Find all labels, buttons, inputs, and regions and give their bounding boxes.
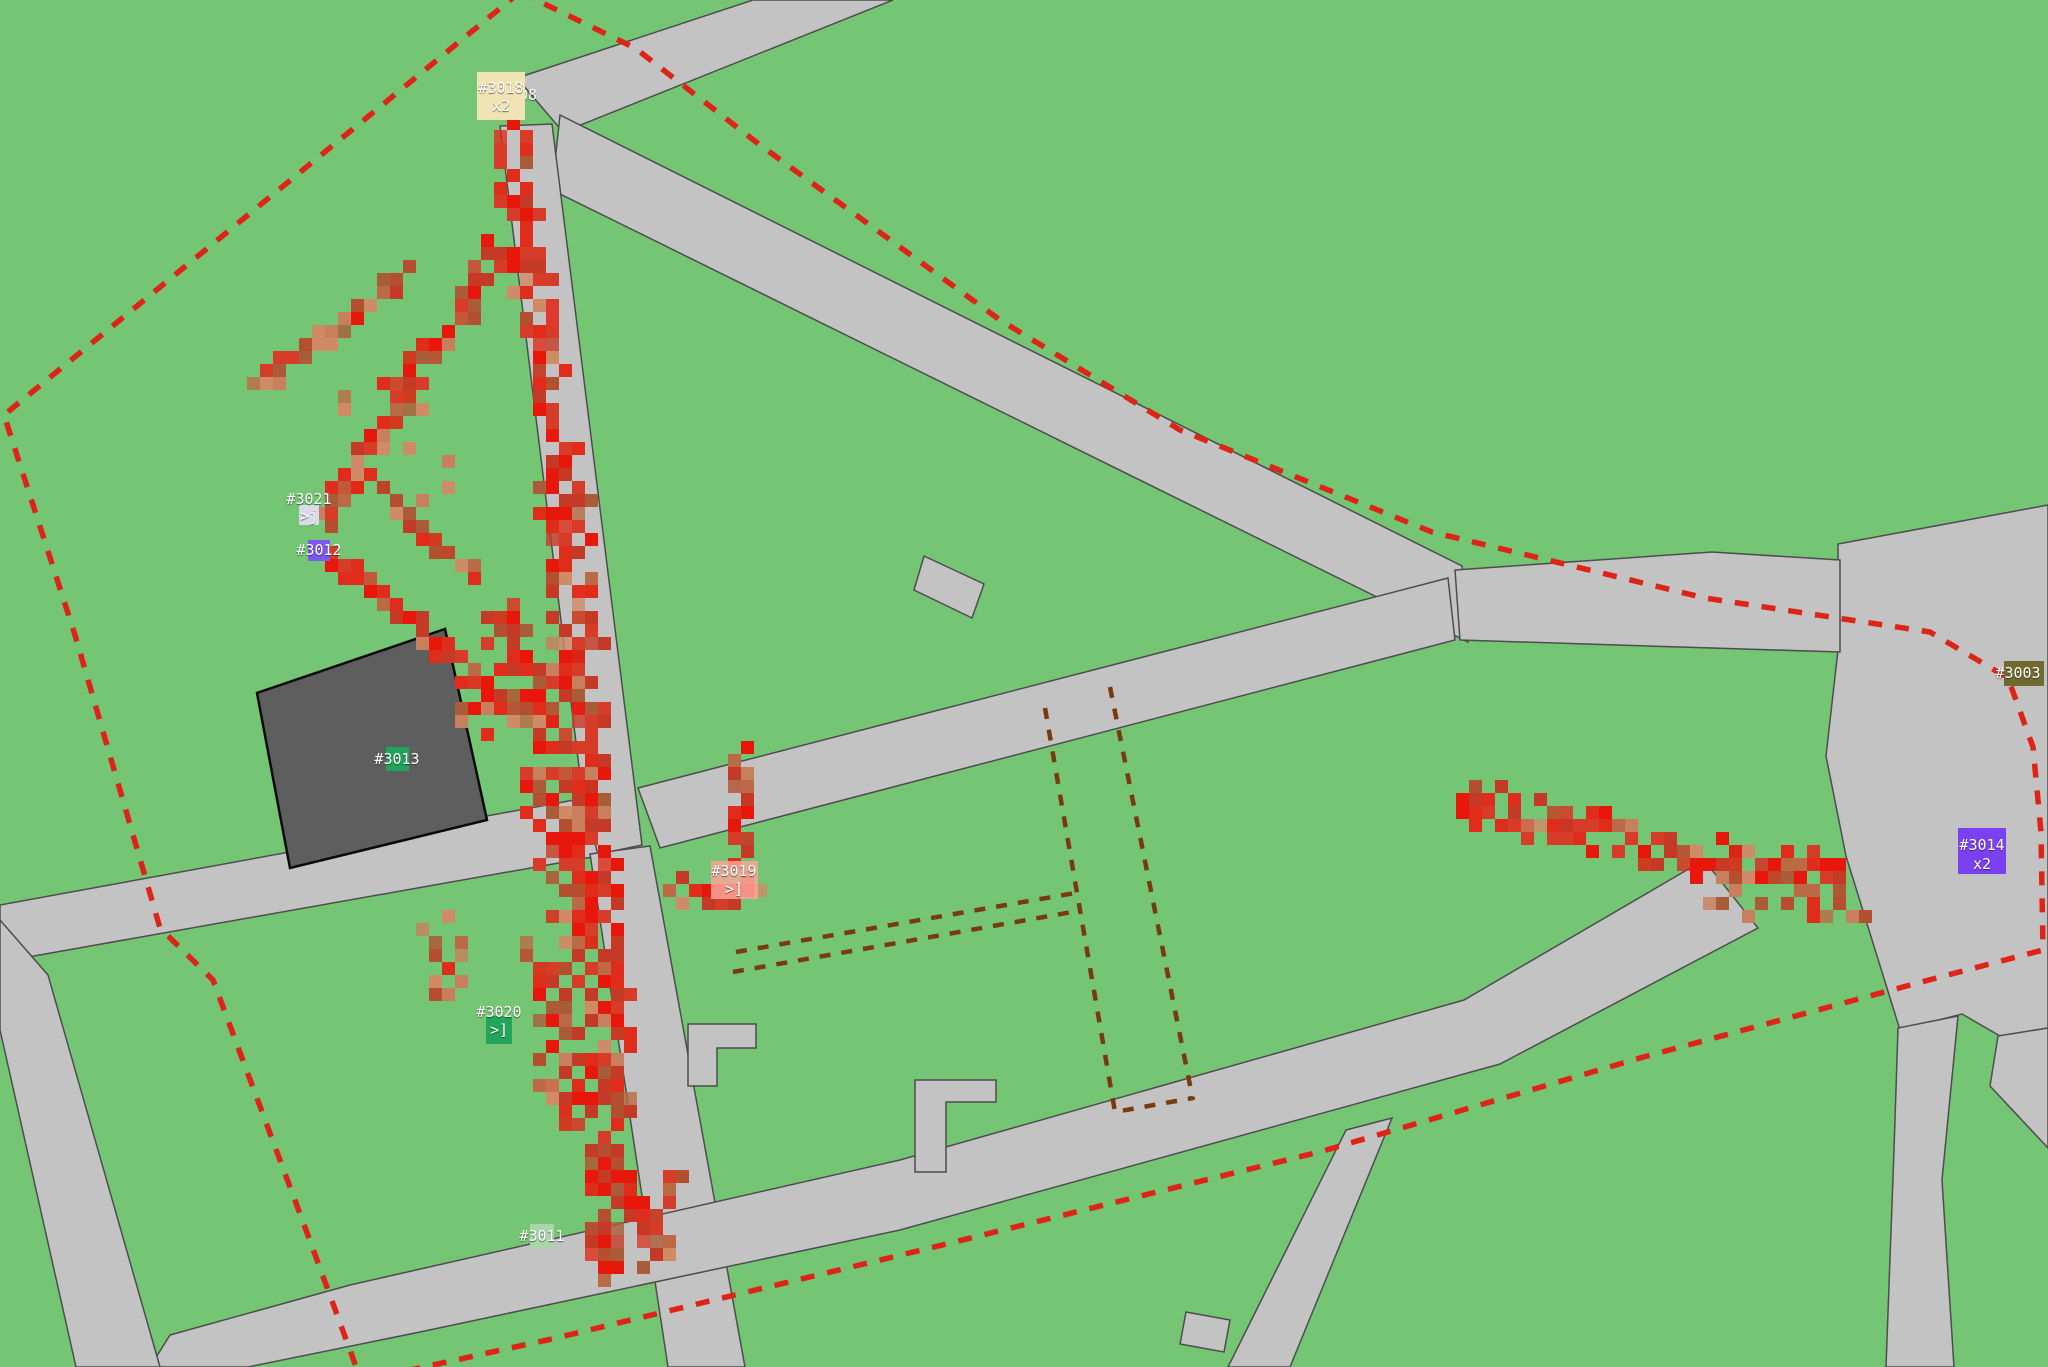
heat-trail-cell — [663, 884, 676, 897]
heat-trail-cell — [442, 910, 455, 923]
heat-trail-cell — [481, 611, 494, 624]
heat-trail-cell — [1833, 884, 1846, 897]
heat-trail-cell — [1560, 832, 1573, 845]
heat-trail-cell — [533, 247, 546, 260]
heat-trail-cell — [546, 975, 559, 988]
heat-trail-cell — [1742, 910, 1755, 923]
heat-trail-cell — [364, 572, 377, 585]
heat-trail-cell — [585, 1235, 598, 1248]
heat-trail-cell — [1664, 845, 1677, 858]
heat-trail-cell — [559, 858, 572, 871]
heat-trail-cell — [520, 702, 533, 715]
heat-trail-cell — [559, 1027, 572, 1040]
road-main-diagonal — [552, 115, 1468, 642]
marker-sublabel-3020[interactable]: >] — [490, 1022, 508, 1039]
heat-trail-cell — [1807, 858, 1820, 871]
heat-trail-cell — [351, 299, 364, 312]
heat-trail-cell — [650, 1235, 663, 1248]
heat-trail-cell — [585, 715, 598, 728]
heat-trail-cell — [520, 689, 533, 702]
zone-dashed-line-1 — [1045, 708, 1193, 1112]
heat-trail-cell — [650, 1248, 663, 1261]
road-stub-a — [688, 1024, 756, 1086]
heat-trail-cell — [546, 273, 559, 286]
heat-trail-cell — [533, 689, 546, 702]
heat-trail-cell — [468, 299, 481, 312]
heat-trail-cell — [442, 481, 455, 494]
map-viewport[interactable]: 08 #3018x2#3021>j#3012#3013#3019>]#3020>… — [0, 0, 2048, 1367]
heat-trail-cell — [1586, 845, 1599, 858]
heat-trail-cell — [559, 533, 572, 546]
marker-sublabel-3019[interactable]: >] — [725, 881, 743, 898]
heat-trail-cell — [611, 1261, 624, 1274]
heat-trail-cell — [351, 442, 364, 455]
heat-trail-cell — [390, 416, 403, 429]
heat-trail-cell — [585, 611, 598, 624]
heat-trail-cell — [299, 338, 312, 351]
heat-trail-cell — [286, 351, 299, 364]
road-left-down — [0, 920, 160, 1367]
heat-trail-cell — [468, 572, 481, 585]
heat-trail-cell — [611, 897, 624, 910]
heat-trail-cell — [728, 780, 741, 793]
heat-trail-cell — [559, 559, 572, 572]
marker-label-3014[interactable]: #3014 — [1959, 837, 2004, 854]
heat-trail-cell — [338, 403, 351, 416]
heat-trail-cell — [1508, 819, 1521, 832]
heat-trail-cell — [351, 455, 364, 468]
heat-trail-cell — [1859, 910, 1872, 923]
heat-trail-cell — [533, 702, 546, 715]
heat-trail-cell — [598, 754, 611, 767]
heat-trail-cell — [611, 962, 624, 975]
heat-trail-cell — [403, 611, 416, 624]
heat-trail-cell — [546, 1014, 559, 1027]
heat-trail-cell — [507, 650, 520, 663]
heat-trail-cell — [1703, 858, 1716, 871]
heat-trail-cell — [598, 1248, 611, 1261]
heat-trail-cell — [1547, 819, 1560, 832]
heat-trail-cell — [585, 871, 598, 884]
heat-trail-cell — [455, 702, 468, 715]
heat-trail-cell — [1716, 871, 1729, 884]
heat-trail-cell — [624, 1027, 637, 1040]
heat-trail-cell — [533, 767, 546, 780]
heat-trail-cell — [390, 403, 403, 416]
heat-trail-cell — [377, 481, 390, 494]
heat-trail-cell — [533, 793, 546, 806]
heat-trail-cell — [520, 286, 533, 299]
heat-trail-cell — [598, 1053, 611, 1066]
heat-trail-cell — [494, 130, 507, 143]
heat-trail-cell — [494, 195, 507, 208]
heat-trail-cell — [611, 1170, 624, 1183]
heat-trail-cell — [546, 871, 559, 884]
heat-trail-cell — [611, 1144, 624, 1157]
heat-trail-cell — [533, 299, 546, 312]
heat-trail-cell — [1794, 858, 1807, 871]
heat-trail-cell — [611, 1196, 624, 1209]
heat-trail-cell — [572, 793, 585, 806]
heat-trail-cell — [481, 689, 494, 702]
heat-trail-cell — [559, 689, 572, 702]
heat-trail-cell — [1664, 832, 1677, 845]
heat-trail-cell — [637, 1235, 650, 1248]
heat-trail-cell — [481, 728, 494, 741]
road-branch-notch — [1180, 1312, 1230, 1352]
heat-trail-cell — [520, 221, 533, 234]
heat-trail-cell — [598, 767, 611, 780]
heat-trail-cell — [572, 611, 585, 624]
heat-trail-cell — [611, 1053, 624, 1066]
heat-trail-cell — [377, 273, 390, 286]
heat-trail-cell — [611, 1118, 624, 1131]
heat-trail-cell — [442, 637, 455, 650]
heat-trail-cell — [403, 390, 416, 403]
heat-trail-cell — [455, 286, 468, 299]
heat-trail-cell — [338, 572, 351, 585]
heat-trail-cell — [559, 546, 572, 559]
heat-trail-cell — [442, 650, 455, 663]
heat-trail-cell — [507, 715, 520, 728]
heat-trail-cell — [1612, 845, 1625, 858]
heat-trail-cell — [1469, 819, 1482, 832]
heat-trail-cell — [728, 832, 741, 845]
heat-trail-cell — [533, 741, 546, 754]
heat-trail-cell — [338, 312, 351, 325]
heat-trail-cell — [455, 299, 468, 312]
heat-trail-cell — [559, 507, 572, 520]
heat-trail-cell — [611, 923, 624, 936]
heat-trail-cell — [546, 468, 559, 481]
heat-trail-cell — [533, 325, 546, 338]
heat-trail-cell — [585, 988, 598, 1001]
heat-trail-cell — [559, 364, 572, 377]
heat-trail-cell — [533, 663, 546, 676]
heat-trail-cell — [1703, 897, 1716, 910]
heat-trail-cell — [572, 741, 585, 754]
heat-trail-cell — [338, 390, 351, 403]
heat-trail-cell — [546, 702, 559, 715]
heat-trail-cell — [494, 624, 507, 637]
heat-trail-cell — [546, 676, 559, 689]
heat-trail-cell — [1456, 806, 1469, 819]
heat-trail-cell — [546, 793, 559, 806]
heat-trail-cell — [1807, 910, 1820, 923]
heat-trail-cell — [572, 845, 585, 858]
heat-trail-cell — [325, 507, 338, 520]
heat-trail-cell — [1781, 897, 1794, 910]
heat-trail-cell — [481, 702, 494, 715]
marker-sublabel-3014[interactable]: x2 — [1973, 856, 1991, 873]
marker-label-3011[interactable]: #3011 — [519, 1228, 564, 1245]
marker-label-3019[interactable]: #3019 — [711, 863, 756, 880]
heat-trail-cell — [585, 884, 598, 897]
heat-trail-cell — [572, 936, 585, 949]
heat-trail-cell — [403, 507, 416, 520]
heat-trail-cell — [598, 793, 611, 806]
heat-trail-cell — [572, 689, 585, 702]
heat-trail-cell — [416, 923, 429, 936]
heat-trail-cell — [533, 1014, 546, 1027]
heat-trail-cell — [546, 559, 559, 572]
heat-trail-cell — [377, 416, 390, 429]
heat-trail-cell — [429, 936, 442, 949]
heat-trail-cell — [546, 585, 559, 598]
heat-trail-cell — [494, 663, 507, 676]
heat-trail-cell — [611, 1027, 624, 1040]
heat-trail-cell — [1677, 845, 1690, 858]
heat-trail-cell — [598, 871, 611, 884]
heat-trail-cell — [585, 819, 598, 832]
heat-trail-cell — [611, 988, 624, 1001]
heat-trail-cell — [559, 572, 572, 585]
heat-trail-cell — [1690, 845, 1703, 858]
heat-trail-cell — [468, 676, 481, 689]
marker-sublabel-3018[interactable]: x2 — [492, 98, 510, 115]
heat-trail-cell — [585, 767, 598, 780]
heat-trail-cell — [741, 806, 754, 819]
heat-trail-cell — [572, 442, 585, 455]
heat-trail-cell — [1573, 819, 1586, 832]
heat-trail-cell — [572, 702, 585, 715]
heat-trail-cell — [377, 442, 390, 455]
heat-trail-cell — [546, 533, 559, 546]
heat-trail-cell — [559, 650, 572, 663]
heat-trail-cell — [572, 1027, 585, 1040]
heat-trail-cell — [637, 1209, 650, 1222]
heat-trail-cell — [390, 598, 403, 611]
marker-label-3018[interactable]: #3018 — [478, 80, 523, 97]
heat-trail-cell — [546, 910, 559, 923]
heat-trail-cell — [442, 338, 455, 351]
heat-trail-cell — [585, 962, 598, 975]
heat-trail-cell — [624, 1092, 637, 1105]
heat-trail-cell — [1495, 819, 1508, 832]
heat-trail-cell — [1716, 832, 1729, 845]
heat-trail-cell — [572, 780, 585, 793]
heat-trail-cell — [390, 286, 403, 299]
heat-trail-cell — [507, 208, 520, 221]
heat-trail-cell — [1495, 780, 1508, 793]
heat-trail-cell — [468, 260, 481, 273]
heat-trail-cell — [494, 182, 507, 195]
heat-trail-cell — [572, 884, 585, 897]
heat-trail-cell — [598, 1014, 611, 1027]
heat-trail-cell — [416, 351, 429, 364]
heat-trail-cell — [1508, 806, 1521, 819]
heat-trail-cell — [1833, 871, 1846, 884]
heat-trail-cell — [559, 494, 572, 507]
heat-trail-cell — [585, 793, 598, 806]
heat-trail-cell — [728, 767, 741, 780]
heat-trail-cell — [598, 962, 611, 975]
heat-trail-cell — [351, 312, 364, 325]
heat-trail-cell — [546, 455, 559, 468]
heat-trail-cell — [559, 936, 572, 949]
heat-trail-cell — [585, 741, 598, 754]
heat-trail-cell — [494, 689, 507, 702]
heat-trail-cell — [546, 403, 559, 416]
heat-trail-cell — [1599, 819, 1612, 832]
heat-trail-cell — [585, 1014, 598, 1027]
heat-trail-cell — [546, 845, 559, 858]
heat-trail-cell — [351, 559, 364, 572]
heat-trail-cell — [546, 312, 559, 325]
heat-trail-cell — [598, 1144, 611, 1157]
heat-trail-cell — [572, 650, 585, 663]
heat-trail-cell — [559, 1014, 572, 1027]
heat-trail-cell — [546, 663, 559, 676]
heat-trail-cell — [520, 143, 533, 156]
heat-trail-cell — [533, 351, 546, 364]
heat-trail-cell — [442, 546, 455, 559]
heat-trail-cell — [598, 715, 611, 728]
heat-trail-cell — [637, 1196, 650, 1209]
heat-trail-cell — [325, 325, 338, 338]
marker-label-3012[interactable]: #3012 — [296, 542, 341, 559]
heat-trail-cell — [598, 1183, 611, 1196]
heat-trail-cell — [1781, 845, 1794, 858]
heat-trail-cell — [585, 806, 598, 819]
heat-trail-cell — [585, 1170, 598, 1183]
heat-trail-cell — [572, 871, 585, 884]
heat-trail-cell — [403, 520, 416, 533]
heat-trail-cell — [1755, 858, 1768, 871]
heat-trail-cell — [520, 260, 533, 273]
heat-trail-cell — [520, 208, 533, 221]
heat-trail-cell — [455, 936, 468, 949]
heat-trail-cell — [598, 1066, 611, 1079]
road-bottom-diagonal — [150, 860, 1758, 1367]
heat-trail-cell — [546, 962, 559, 975]
heat-trail-cell — [572, 819, 585, 832]
heat-trail-cell — [585, 572, 598, 585]
marker-label-3003[interactable]: #3003 — [1995, 665, 2040, 682]
heat-trail-cell — [598, 1235, 611, 1248]
heat-trail-cell — [507, 195, 520, 208]
heat-trail-cell — [598, 819, 611, 832]
heat-trail-cell — [598, 1040, 611, 1053]
heat-trail-cell — [1820, 910, 1833, 923]
heat-trail-cell — [351, 572, 364, 585]
heat-trail-cell — [1534, 793, 1547, 806]
heat-trail-cell — [533, 1079, 546, 1092]
marker-label-3013[interactable]: #3013 — [374, 751, 419, 768]
heat-trail-cell — [559, 1001, 572, 1014]
heat-trail-cell — [533, 819, 546, 832]
heat-trail-cell — [494, 156, 507, 169]
heat-trail-cell — [520, 949, 533, 962]
heat-trail-cell — [585, 1183, 598, 1196]
heat-trail-cell — [546, 416, 559, 429]
marker-label-3020[interactable]: #3020 — [476, 1004, 521, 1021]
heat-trail-cell — [572, 676, 585, 689]
heat-trail-cell — [1560, 806, 1573, 819]
heat-trail-cell — [533, 988, 546, 1001]
heat-trail-cell — [520, 767, 533, 780]
heat-trail-cell — [1729, 871, 1742, 884]
heat-trail-cell — [507, 624, 520, 637]
heat-trail-cell — [1469, 806, 1482, 819]
heat-trail-cell — [364, 585, 377, 598]
heat-trail-cell — [533, 676, 546, 689]
heat-trail-cell — [572, 507, 585, 520]
heat-trail-cell — [325, 338, 338, 351]
heat-trail-cell — [1742, 845, 1755, 858]
heat-trail-cell — [1833, 858, 1846, 871]
heat-trail-cell — [559, 832, 572, 845]
heat-trail-cell — [273, 351, 286, 364]
heat-trail-cell — [1781, 858, 1794, 871]
heat-trail-cell — [572, 897, 585, 910]
heat-trail-cell — [598, 910, 611, 923]
heat-trail-cell — [520, 182, 533, 195]
heat-trail-cell — [546, 637, 559, 650]
heat-trail-cell — [507, 637, 520, 650]
heat-trail-cell — [416, 533, 429, 546]
heat-trail-cell — [325, 520, 338, 533]
heat-trail-cell — [663, 1235, 676, 1248]
heat-trail-cell — [1625, 819, 1638, 832]
heat-trail-cell — [598, 975, 611, 988]
heat-trail-cell — [455, 676, 468, 689]
heat-trail-cell — [728, 819, 741, 832]
heat-trail-cell — [416, 377, 429, 390]
heat-trail-cell — [598, 637, 611, 650]
heat-trail-cell — [624, 1183, 637, 1196]
heat-trail-cell — [273, 364, 286, 377]
marker-label-3021[interactable]: #3021 — [286, 491, 331, 508]
heat-trail-cell — [546, 611, 559, 624]
heat-trail-cell — [598, 858, 611, 871]
heat-trail-cell — [572, 481, 585, 494]
heat-trail-cell — [572, 1079, 585, 1092]
heat-trail-cell — [624, 988, 637, 1001]
heat-trail-cell — [611, 975, 624, 988]
heat-trail-cell — [559, 468, 572, 481]
heat-trail-cell — [585, 624, 598, 637]
heat-trail-cell — [1586, 806, 1599, 819]
heat-trail-cell — [611, 884, 624, 897]
heat-trail-cell — [546, 377, 559, 390]
heat-trail-cell — [741, 767, 754, 780]
road-b-to-plaza — [1455, 552, 1840, 652]
heat-trail-cell — [403, 377, 416, 390]
heat-trail-cell — [585, 1092, 598, 1105]
heat-trail-cell — [1560, 819, 1573, 832]
heat-trail-cell — [533, 507, 546, 520]
heat-trail-cell — [611, 1183, 624, 1196]
heat-trail-cell — [546, 429, 559, 442]
heat-trail-cell — [1521, 819, 1534, 832]
heat-trail-cell — [494, 611, 507, 624]
heat-trail-cell — [520, 715, 533, 728]
heat-trail-cell — [351, 468, 364, 481]
heat-trail-cell — [572, 546, 585, 559]
heat-trail-cell — [533, 377, 546, 390]
marker-sublabel-3021[interactable]: >j — [300, 508, 318, 525]
heat-trail-cell — [572, 949, 585, 962]
heat-trail-cell — [546, 351, 559, 364]
heat-trail-cell — [377, 598, 390, 611]
heat-trail-cell — [1612, 819, 1625, 832]
heat-trail-cell — [559, 767, 572, 780]
heat-trail-cell — [533, 481, 546, 494]
heat-trail-cell — [533, 390, 546, 403]
heat-trail-cell — [416, 611, 429, 624]
heat-trail-cell — [481, 247, 494, 260]
